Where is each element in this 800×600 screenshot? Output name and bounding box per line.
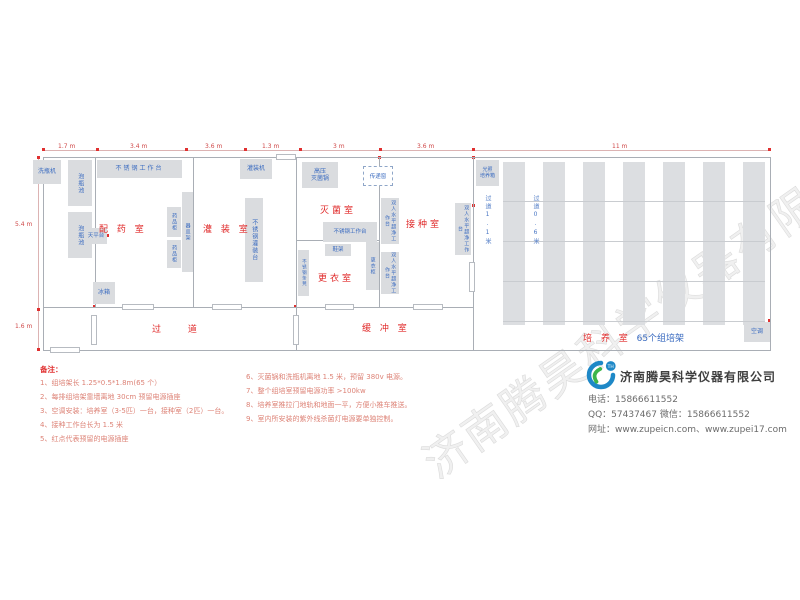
vessel-rack-box: 器皿架 bbox=[182, 192, 193, 272]
note-item: 3、空调安装：培养室（3-5匹）一台，接种室（2匹）一台。 bbox=[40, 406, 228, 416]
dim-top-5: 3 m bbox=[333, 143, 345, 150]
autoclave-box: 灭菌锅 bbox=[311, 175, 329, 183]
company-name: 济南腾昊科学仪器有限公司 bbox=[620, 368, 776, 385]
room-label-filling: 灌 装 室 bbox=[203, 222, 251, 235]
wall bbox=[43, 157, 44, 350]
wall bbox=[43, 350, 770, 351]
room-label-changing: 更衣室 bbox=[318, 271, 354, 284]
power-socket-dot bbox=[42, 148, 45, 151]
dim-top-6: 3.6 m bbox=[417, 143, 434, 150]
culture-room-label: 培 养 室 bbox=[583, 334, 631, 344]
ss-workbench-box: 不锈钢工作台 bbox=[323, 222, 377, 242]
logo-initials: TH bbox=[607, 364, 614, 370]
notes-block-2: 6、灭菌锅和洗瓶机离地 1.5 米，预留 380v 电源。 7、整个组培室预留电… bbox=[246, 372, 411, 428]
dim-top-1: 1.7 m bbox=[58, 143, 75, 150]
power-socket-dot bbox=[472, 148, 475, 151]
sliding-door bbox=[325, 304, 354, 310]
window bbox=[276, 154, 296, 160]
medicine-cabinet-box: 药品柜 bbox=[167, 240, 181, 268]
floor-plan-page: 济南腾昊科学仪器有限公司 1.7 m 3.4 m 3.6 m 1.3 m 3 m… bbox=[0, 0, 800, 600]
fridge-box: 冰箱 bbox=[93, 282, 115, 304]
power-socket-dot bbox=[244, 148, 247, 151]
notes-block: 备注： 1、组培架长 1.25*0.5*1.8m(65 个） 2、每排组培架靠墙… bbox=[40, 364, 228, 448]
room-label-preparation: 配 药 室 bbox=[99, 222, 147, 235]
autoclave-box: 高压 bbox=[314, 168, 326, 176]
room-label-buffer: 缓 冲 室 bbox=[362, 321, 410, 334]
sliding-door bbox=[413, 304, 443, 310]
notes-title: 备注： bbox=[40, 364, 228, 375]
soak-pool-box: 泡瓶池 bbox=[68, 160, 92, 206]
room-label-corridor: 过 道 bbox=[152, 322, 209, 335]
sliding-door bbox=[122, 304, 154, 310]
power-socket-dot bbox=[37, 156, 40, 159]
power-socket-dot bbox=[185, 148, 188, 151]
room-label-inoculation: 接种室 bbox=[406, 217, 442, 230]
power-socket-dot bbox=[379, 148, 382, 151]
door bbox=[469, 262, 475, 292]
wall bbox=[43, 157, 770, 158]
medicine-cabinet-box: 药品柜 bbox=[167, 207, 181, 237]
door bbox=[293, 315, 299, 345]
dim-top-4: 1.3 m bbox=[262, 143, 279, 150]
ss-bench-box: 不锈钢条凳 bbox=[298, 250, 309, 296]
wall bbox=[473, 157, 474, 350]
power-socket-dot bbox=[299, 148, 302, 151]
entrance-door bbox=[50, 347, 80, 353]
wall bbox=[43, 307, 473, 308]
power-socket-dot bbox=[768, 148, 771, 151]
sliding-door bbox=[212, 304, 242, 310]
note-item: 8、培养室推拉门地轨和地面一平，方便小推车推送。 bbox=[246, 400, 411, 410]
pass-window-box: 传递窗 bbox=[363, 166, 393, 186]
note-item: 5、红点代表预留的电源插座 bbox=[40, 434, 228, 444]
aisle-width-label: 过道0.6米 bbox=[531, 195, 540, 261]
air-conditioner-box: 空调 bbox=[744, 322, 770, 342]
power-socket-dot bbox=[37, 348, 40, 351]
note-item: 7、整个组培室预留电源功率 >100kw bbox=[246, 386, 411, 396]
room-label-culture: 培 养 室 65个组培架 bbox=[583, 331, 684, 344]
note-item: 2、每排组培架靠墙离地 30cm 预留电源插座 bbox=[40, 392, 228, 402]
filling-machine-box: 灌装机 bbox=[240, 159, 272, 179]
note-item: 9、室内所安装的紫外线杀菌灯电源要单独控制。 bbox=[246, 414, 411, 424]
qq-wechat-line: QQ：57437467 微信：15866611552 bbox=[588, 407, 750, 420]
bottle-washer-box: 洗瓶机 bbox=[33, 160, 61, 184]
dim-left-1: 5.4 m bbox=[15, 221, 32, 228]
ss-filling-table-box: 不锈钢灌装台 bbox=[245, 198, 263, 282]
top-dimension-line bbox=[43, 150, 770, 151]
note-item: 6、灭菌锅和洗瓶机离地 1.5 米，预留 380v 电源。 bbox=[246, 372, 411, 382]
website-line: 网址：www.zupeicn.com、www.zupei17.com bbox=[588, 422, 787, 435]
wall bbox=[193, 157, 194, 307]
clean-bench-box: 双人水平超净工作台 bbox=[455, 203, 471, 255]
shoe-rack-box: 鞋架 bbox=[325, 244, 351, 256]
wall bbox=[770, 157, 771, 351]
phone-line: 电话：15866611552 bbox=[588, 392, 678, 405]
dim-top-7: 11 m bbox=[612, 143, 627, 150]
power-socket-dot bbox=[37, 308, 40, 311]
ss-workbench-box: 不锈钢工作台 bbox=[97, 160, 182, 178]
dim-top-3: 3.6 m bbox=[205, 143, 222, 150]
room-label-sterilization: 灭菌室 bbox=[320, 203, 356, 216]
wardrobe-box: 更衣柜 bbox=[366, 242, 379, 290]
culture-rack-stripes bbox=[503, 162, 765, 325]
culture-rack-count-label: 65个组培架 bbox=[637, 334, 684, 344]
aisle-width-label: 过道1.1米 bbox=[483, 195, 492, 261]
dim-top-2: 3.4 m bbox=[130, 143, 147, 150]
note-item: 1、组培架长 1.25*0.5*1.8m(65 个） bbox=[40, 378, 228, 388]
left-dimension-line bbox=[38, 157, 39, 350]
note-item: 4、接种工作台长为 1.5 米 bbox=[40, 420, 228, 430]
company-logo-icon: TH bbox=[586, 360, 616, 390]
dim-left-2: 1.6 m bbox=[15, 323, 32, 330]
light-incubator-box: 培养箱 bbox=[480, 173, 495, 179]
power-socket-dot bbox=[96, 148, 99, 151]
clean-bench-box: 双人水平超净工作台 bbox=[381, 252, 399, 294]
clean-bench-box: 双人水平超净工作台 bbox=[381, 198, 399, 244]
door bbox=[91, 315, 97, 345]
